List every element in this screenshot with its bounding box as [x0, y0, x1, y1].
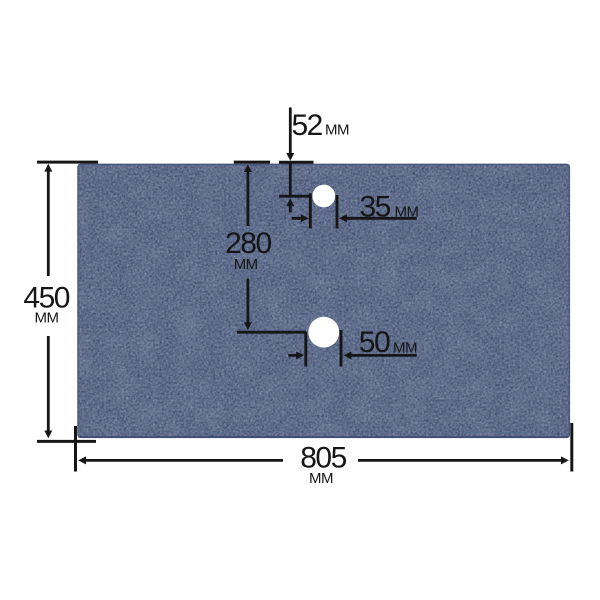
svg-text:50: 50 [359, 326, 390, 359]
svg-text:MM: MM [325, 122, 349, 139]
svg-text:MM: MM [234, 256, 258, 273]
svg-text:MM: MM [395, 204, 419, 221]
svg-text:MM: MM [309, 470, 333, 487]
svg-text:35: 35 [360, 191, 391, 224]
svg-text:MM: MM [35, 310, 59, 327]
svg-text:52: 52 [292, 109, 323, 142]
svg-text:MM: MM [393, 340, 417, 357]
